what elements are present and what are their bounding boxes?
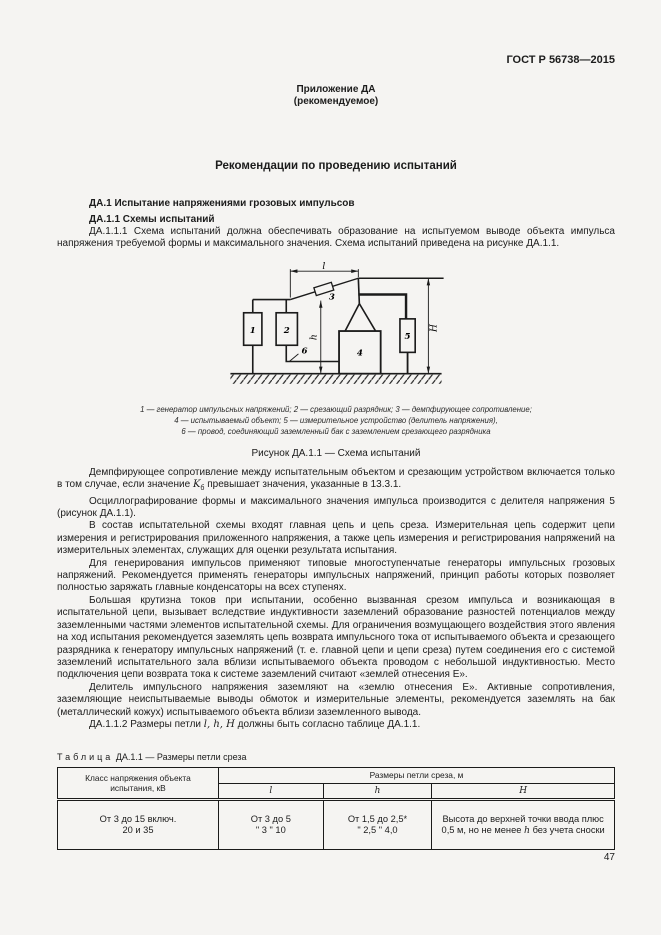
table-da11: Класс напряжения объекта испытания, кВ Р… — [57, 767, 615, 850]
paragraph-steepness: Большая крутизна токов при испытании, ос… — [57, 595, 615, 682]
doc-code: ГОСТ Р 56738—2015 — [57, 54, 615, 66]
table-subheader-l: l — [218, 783, 323, 800]
table-label: Таблица ДА.1.1 — Размеры петли среза — [57, 752, 615, 762]
grounding-wire-6 — [286, 345, 339, 361]
label-3: 3 — [329, 292, 335, 302]
table-subheader-H: H — [432, 783, 615, 800]
paragraph-divider-grounding: Делитель импульсного напряжения заземляю… — [57, 682, 615, 719]
cell-voltage-class: От 3 до 15 включ. 20 и 35 — [58, 800, 219, 850]
cell-h: От 1,5 до 2,5* " 2,5 " 4,0 — [323, 800, 432, 850]
cell-l: От 3 до 5 " 3 " 10 — [218, 800, 323, 850]
legend-line-3: 6 — провод, соединяющий заземленный бак … — [57, 426, 615, 437]
figure-legend: 1 — генератор импульсных напряжений; 2 —… — [57, 404, 615, 437]
table-header-loop-sizes: Размеры петли среза, м — [218, 768, 614, 784]
figure-caption: Рисунок ДА.1.1 — Схема испытаний — [57, 448, 615, 459]
dimension-l-label: l — [322, 262, 325, 272]
paragraph-da112: ДА.1.1.2 Размеры петли l, h, Н должны бы… — [57, 719, 615, 731]
section-heading-da11: ДА.1.1 Схемы испытаний — [57, 214, 615, 225]
paragraph-generators: Для генерирования импульсов применяют ти… — [57, 558, 615, 595]
label-1: 1 — [250, 326, 256, 336]
table-header-voltage-class: Класс напряжения объекта испытания, кВ — [58, 768, 219, 800]
label-5: 5 — [405, 332, 411, 342]
paragraph-scheme-composition: В состав испытательной схемы входят глав… — [57, 520, 615, 557]
figure-test-scheme: 1 2 3 4 5 6 — [57, 261, 615, 459]
bushing-triangle — [345, 303, 375, 330]
document-page: ГОСТ Р 56738—2015 Приложение ДА (рекомен… — [0, 0, 661, 935]
dimension-H-label: H — [430, 323, 440, 333]
ground-hatching — [230, 375, 441, 384]
label-4: 4 — [357, 348, 363, 358]
annex-block: Приложение ДА (рекомендуемое) — [57, 84, 615, 108]
cell-H: Высота до верхней точки ввода плюс 0,5 м… — [432, 800, 615, 850]
variables-lhH: l, h, Н — [204, 719, 235, 730]
body-paragraphs: Демпфирующее сопротивление между испытат… — [57, 467, 615, 732]
label-6: 6 — [301, 346, 307, 356]
paragraph-damping: Демпфирующее сопротивление между испытат… — [57, 467, 615, 496]
dimension-h-label: h — [310, 334, 320, 340]
table-row: От 3 до 15 включ. 20 и 35 От 3 до 5 " 3 … — [58, 800, 615, 850]
annex-title: Приложение ДА — [57, 84, 615, 96]
table-subheader-h: h — [323, 783, 432, 800]
paragraph-oscillography: Осциллографирование формы и максимальног… — [57, 496, 615, 521]
section-heading-da1: ДА.1 Испытание напряжениями грозовых имп… — [57, 198, 615, 209]
legend-line-2: 4 — испытываемый объект; 5 — измерительн… — [57, 415, 615, 426]
annex-note: (рекомендуемое) — [57, 96, 615, 108]
test-scheme-diagram: 1 2 3 4 5 6 — [222, 261, 450, 395]
page-number: 47 — [604, 852, 615, 863]
page-title: Рекомендации по проведению испытаний — [57, 160, 615, 172]
page-content: ГОСТ Р 56738—2015 Приложение ДА (рекомен… — [57, 0, 615, 850]
legend-line-1: 1 — генератор импульсных напряжений; 2 —… — [57, 404, 615, 415]
label-2: 2 — [283, 326, 290, 336]
paragraph-da111: ДА.1.1.1 Схема испытаний должна обеспечи… — [57, 226, 615, 251]
